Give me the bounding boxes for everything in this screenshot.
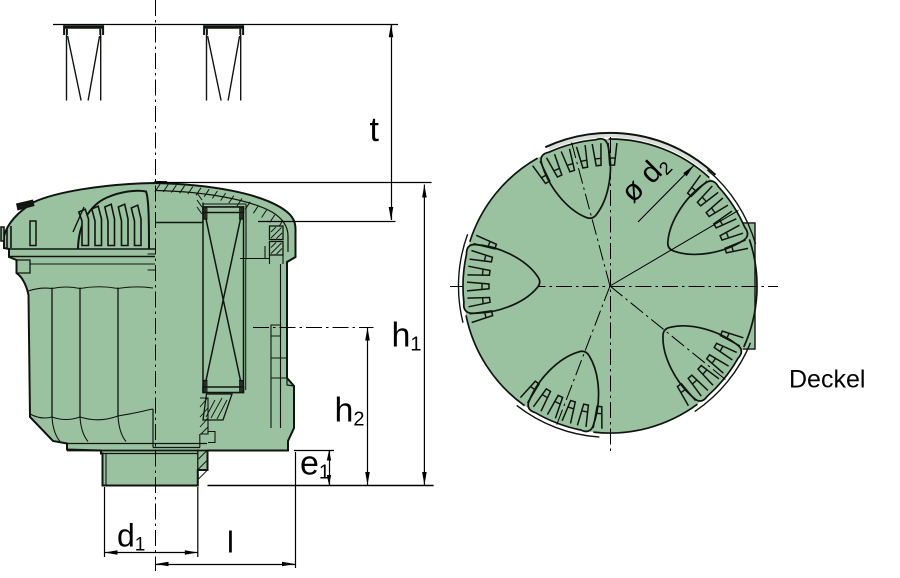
svg-text:t: t	[370, 111, 380, 149]
svg-text:l: l	[227, 524, 234, 559]
svg-text:Deckel: Deckel	[789, 366, 865, 394]
